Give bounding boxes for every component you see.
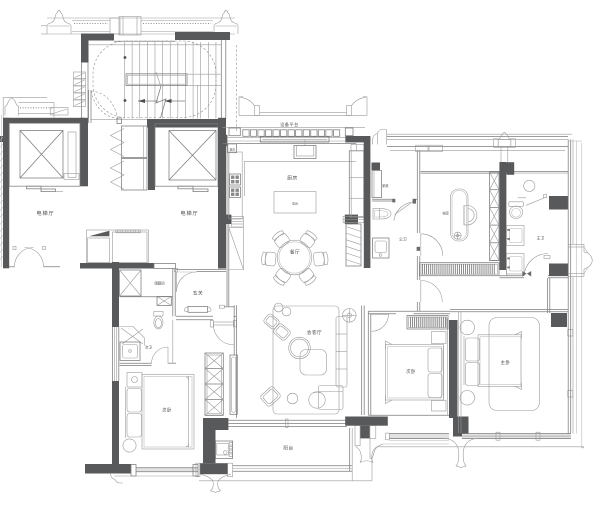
svg-text:电梯厅: 电梯厅 <box>180 209 198 217</box>
svg-text:岛台: 岛台 <box>292 201 298 206</box>
svg-text:电梯厅: 电梯厅 <box>36 209 54 217</box>
svg-text:设备平台: 设备平台 <box>280 121 299 128</box>
svg-text:次卧: 次卧 <box>162 407 172 414</box>
svg-text:次卫: 次卫 <box>145 345 153 350</box>
svg-text:储藏间: 储藏间 <box>154 281 165 286</box>
svg-text:厨房: 厨房 <box>287 175 298 182</box>
svg-text:家政: 家政 <box>382 183 389 188</box>
svg-text:阳台: 阳台 <box>283 445 293 452</box>
svg-text:主卧: 主卧 <box>501 359 511 366</box>
svg-text:公卫: 公卫 <box>399 237 407 242</box>
svg-text:玄关: 玄关 <box>193 290 203 297</box>
svg-text:次卧: 次卧 <box>406 368 416 375</box>
svg-text:主卫: 主卫 <box>537 236 545 241</box>
svg-text:餐厅: 餐厅 <box>290 249 300 256</box>
svg-text:会客厅: 会客厅 <box>307 329 322 336</box>
svg-text:书房: 书房 <box>442 211 450 216</box>
svg-text:烟道: 烟道 <box>230 147 236 151</box>
